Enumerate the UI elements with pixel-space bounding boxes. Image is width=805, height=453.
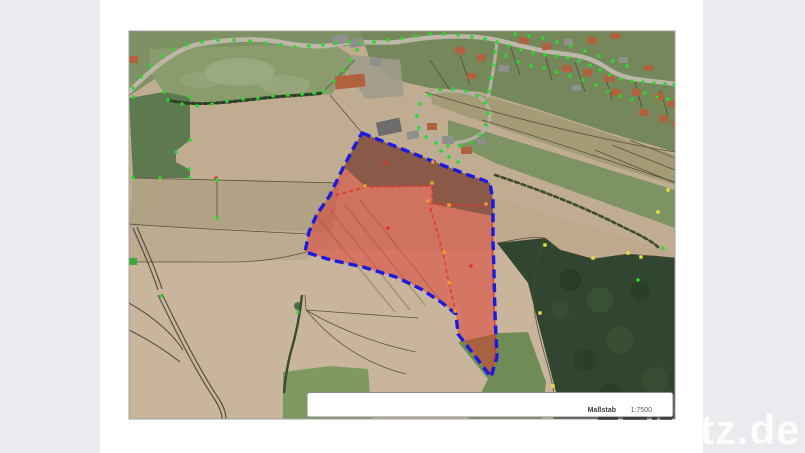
survey-point bbox=[663, 82, 667, 86]
survey-point bbox=[241, 97, 245, 101]
building bbox=[129, 56, 138, 63]
building bbox=[461, 147, 472, 154]
survey-point bbox=[543, 53, 547, 57]
survey-point bbox=[588, 63, 592, 67]
survey-point bbox=[619, 77, 623, 81]
survey-point bbox=[507, 44, 511, 48]
survey-point bbox=[597, 54, 601, 58]
survey-point bbox=[666, 97, 670, 101]
survey-point bbox=[162, 90, 166, 94]
boundary-point bbox=[666, 188, 669, 191]
building bbox=[467, 73, 476, 79]
building bbox=[477, 139, 486, 145]
vertex-point bbox=[430, 181, 433, 184]
survey-point bbox=[618, 94, 622, 98]
building bbox=[632, 89, 641, 96]
survey-point bbox=[542, 66, 546, 70]
survey-point bbox=[300, 92, 304, 96]
survey-point bbox=[442, 32, 446, 36]
survey-point bbox=[372, 40, 376, 44]
vertex-point bbox=[447, 203, 450, 206]
building bbox=[654, 92, 665, 100]
vertex-point bbox=[453, 309, 456, 312]
map-canvas[interactable]: Maßstab 1:7500 tz.de bbox=[0, 0, 805, 453]
building bbox=[583, 69, 592, 77]
survey-point bbox=[171, 47, 175, 51]
survey-point bbox=[458, 144, 462, 148]
survey-point bbox=[418, 102, 422, 106]
vertex-point bbox=[447, 281, 450, 284]
survey-point bbox=[652, 81, 656, 85]
boundary-point bbox=[639, 255, 642, 258]
survey-point bbox=[483, 37, 487, 41]
building bbox=[659, 115, 669, 123]
survey-point bbox=[216, 38, 220, 42]
survey-point bbox=[483, 101, 487, 105]
survey-point bbox=[347, 40, 351, 44]
building bbox=[587, 36, 598, 44]
survey-point bbox=[434, 141, 438, 145]
survey-point bbox=[187, 176, 191, 180]
survey-point bbox=[598, 68, 602, 72]
survey-point bbox=[475, 94, 479, 98]
survey-point bbox=[131, 86, 135, 90]
boundary-point bbox=[626, 251, 629, 254]
survey-point bbox=[174, 150, 178, 154]
survey-point bbox=[187, 95, 191, 99]
survey-point bbox=[188, 138, 192, 142]
boundary-point bbox=[543, 243, 546, 246]
survey-point bbox=[293, 45, 297, 49]
survey-point bbox=[307, 44, 311, 48]
survey-point bbox=[641, 80, 645, 84]
survey-point bbox=[225, 99, 229, 103]
survey-point bbox=[636, 278, 640, 282]
building bbox=[442, 135, 455, 144]
survey-point bbox=[630, 79, 634, 83]
building bbox=[477, 54, 487, 62]
survey-point bbox=[248, 39, 252, 43]
survey-point bbox=[386, 38, 390, 42]
building bbox=[611, 33, 620, 39]
vertex-point bbox=[442, 250, 445, 253]
survey-point bbox=[555, 54, 559, 58]
survey-point bbox=[438, 88, 442, 92]
building bbox=[562, 64, 573, 72]
survey-point bbox=[577, 59, 581, 63]
survey-point bbox=[334, 41, 338, 45]
survey-point bbox=[279, 43, 283, 47]
building bbox=[519, 37, 530, 45]
survey-point bbox=[625, 64, 629, 68]
building bbox=[572, 85, 581, 92]
survey-point bbox=[447, 155, 451, 159]
building bbox=[370, 58, 381, 66]
survey-point bbox=[355, 48, 359, 52]
survey-point bbox=[493, 50, 497, 54]
boundary-point bbox=[656, 210, 659, 213]
survey-point bbox=[504, 54, 508, 58]
survey-point bbox=[428, 32, 432, 36]
vertex-point bbox=[431, 160, 434, 163]
survey-point bbox=[215, 216, 219, 220]
survey-point bbox=[187, 167, 191, 171]
survey-point bbox=[630, 97, 634, 101]
scale-bar bbox=[598, 417, 672, 420]
survey-point bbox=[195, 104, 199, 108]
survey-point bbox=[456, 33, 460, 37]
survey-point bbox=[489, 76, 493, 80]
parcel-label-point bbox=[469, 264, 472, 267]
survey-point bbox=[451, 87, 455, 91]
survey-point bbox=[569, 44, 573, 48]
survey-point bbox=[486, 111, 490, 115]
boundary-point bbox=[538, 311, 541, 314]
survey-point bbox=[185, 43, 189, 47]
vertex-point bbox=[484, 202, 487, 205]
survey-point bbox=[322, 89, 326, 93]
survey-point bbox=[568, 74, 572, 78]
survey-point bbox=[583, 49, 587, 53]
survey-point bbox=[359, 41, 363, 45]
survey-point bbox=[469, 140, 473, 144]
scale-bar-segment bbox=[660, 417, 672, 420]
survey-point bbox=[594, 83, 598, 87]
building bbox=[672, 121, 680, 127]
survey-point bbox=[439, 149, 443, 153]
survey-point bbox=[541, 36, 545, 40]
survey-point bbox=[321, 43, 325, 47]
survey-point bbox=[332, 79, 336, 83]
survey-point bbox=[312, 91, 316, 95]
boundary-point bbox=[551, 384, 554, 387]
scale-bar-segment bbox=[623, 417, 647, 420]
survey-point bbox=[484, 123, 488, 127]
survey-point bbox=[131, 95, 135, 99]
building bbox=[644, 65, 653, 72]
survey-point bbox=[456, 160, 460, 164]
survey-point bbox=[519, 48, 523, 52]
building bbox=[542, 43, 552, 51]
survey-point bbox=[264, 41, 268, 45]
building bbox=[427, 123, 437, 130]
scale-box: Maßstab 1:7500 bbox=[307, 393, 673, 418]
survey-point bbox=[643, 91, 647, 95]
survey-point bbox=[470, 35, 474, 39]
survey-point bbox=[232, 38, 236, 42]
survey-point bbox=[341, 68, 345, 72]
survey-point bbox=[566, 56, 570, 60]
vertex-point bbox=[363, 184, 366, 187]
survey-point bbox=[180, 102, 184, 106]
survey-point bbox=[349, 58, 353, 62]
scale-bar-segment bbox=[652, 417, 657, 420]
watermark: tz.de bbox=[700, 406, 801, 453]
survey-point bbox=[256, 96, 260, 100]
survey-point bbox=[158, 176, 162, 180]
survey-point bbox=[581, 78, 585, 82]
survey-point bbox=[446, 144, 450, 148]
survey-point bbox=[555, 70, 559, 74]
survey-point bbox=[166, 98, 170, 102]
survey-point bbox=[424, 135, 428, 139]
survey-point bbox=[200, 40, 204, 44]
survey-point bbox=[400, 36, 404, 40]
survey-point bbox=[271, 94, 275, 98]
survey-point bbox=[529, 64, 533, 68]
building bbox=[564, 39, 573, 45]
survey-point bbox=[487, 89, 491, 93]
app-background: { "window": { "background_color": "#e9eb… bbox=[0, 0, 805, 453]
survey-point bbox=[159, 54, 163, 58]
survey-point bbox=[606, 89, 610, 93]
boundary-point bbox=[591, 256, 594, 259]
survey-point bbox=[495, 40, 499, 44]
survey-point bbox=[608, 73, 612, 77]
survey-point bbox=[491, 63, 495, 67]
survey-point bbox=[555, 40, 559, 44]
survey-point bbox=[159, 294, 163, 298]
survey-point bbox=[148, 64, 152, 68]
parcel-label-point bbox=[386, 226, 389, 229]
aerial-imagery bbox=[128, 31, 680, 419]
survey-point bbox=[139, 75, 143, 79]
survey-point bbox=[478, 133, 482, 137]
scale-bar-segment bbox=[598, 417, 618, 420]
survey-point bbox=[296, 310, 300, 314]
survey-point bbox=[417, 126, 421, 130]
survey-point bbox=[464, 89, 468, 93]
building bbox=[619, 57, 628, 63]
survey-point bbox=[131, 175, 135, 179]
vertex-point bbox=[426, 199, 429, 202]
survey-point bbox=[414, 34, 418, 38]
building bbox=[499, 65, 510, 73]
scale-value: 1:7500 bbox=[631, 407, 653, 414]
survey-point bbox=[516, 60, 520, 64]
parcel-label-point bbox=[383, 161, 386, 164]
survey-point bbox=[527, 34, 531, 38]
survey-point bbox=[611, 59, 615, 63]
survey-point bbox=[286, 93, 290, 97]
survey-point bbox=[210, 102, 214, 106]
survey-point bbox=[415, 114, 419, 118]
survey-point bbox=[427, 93, 431, 97]
survey-point bbox=[215, 178, 219, 182]
scale-label: Maßstab bbox=[588, 407, 616, 414]
survey-point bbox=[531, 51, 535, 55]
building bbox=[639, 109, 650, 117]
survey-point bbox=[661, 246, 665, 250]
survey-point bbox=[655, 95, 659, 99]
survey-point bbox=[513, 32, 517, 36]
